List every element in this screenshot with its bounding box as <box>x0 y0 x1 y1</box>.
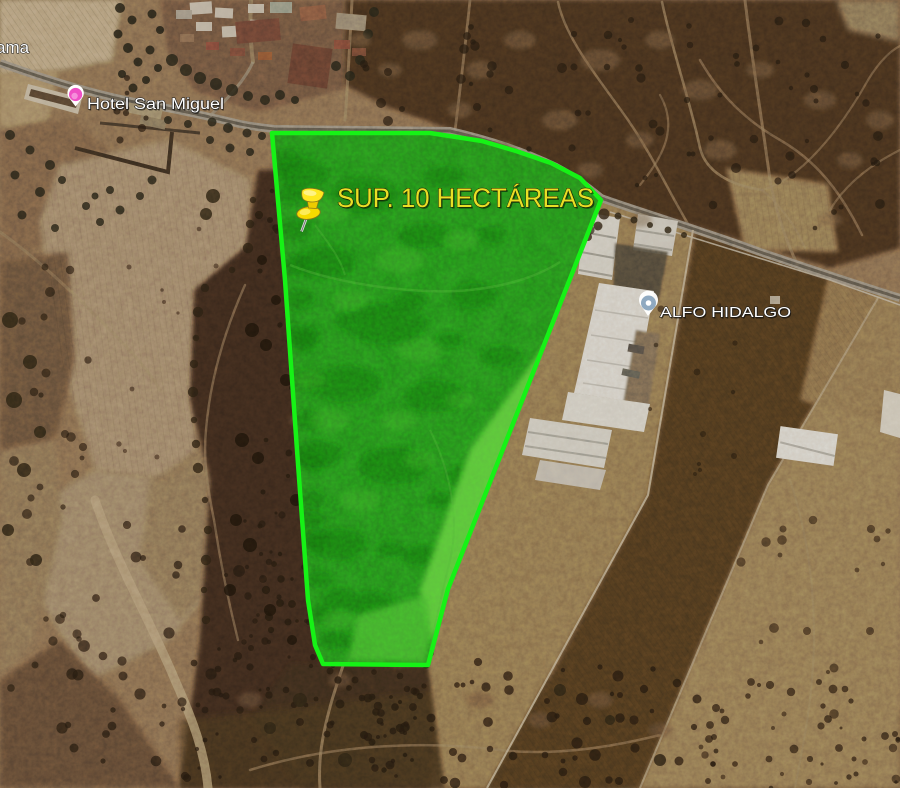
svg-text:Hotel San Miguel: Hotel San Miguel <box>87 96 224 113</box>
svg-text:ALFO HIDALGO: ALFO HIDALGO <box>660 304 791 321</box>
svg-text:ama: ama <box>0 38 30 57</box>
svg-text:SUP. 10 HECTÁREAS: SUP. 10 HECTÁREAS <box>337 183 594 213</box>
